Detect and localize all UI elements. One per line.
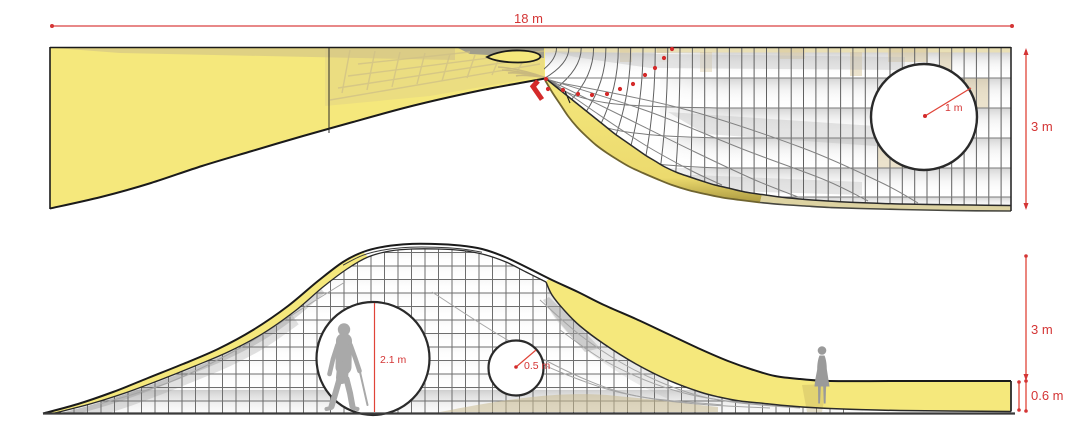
svg-text:1 m: 1 m <box>945 102 963 114</box>
svg-text:18 m: 18 m <box>514 11 543 26</box>
svg-text:0.5 m: 0.5 m <box>524 360 551 372</box>
svg-text:3 m: 3 m <box>1031 322 1053 337</box>
svg-text:0.6 m: 0.6 m <box>1031 388 1064 403</box>
svg-text:2.1 m: 2.1 m <box>380 354 407 366</box>
svg-text:3 m: 3 m <box>1031 119 1053 134</box>
